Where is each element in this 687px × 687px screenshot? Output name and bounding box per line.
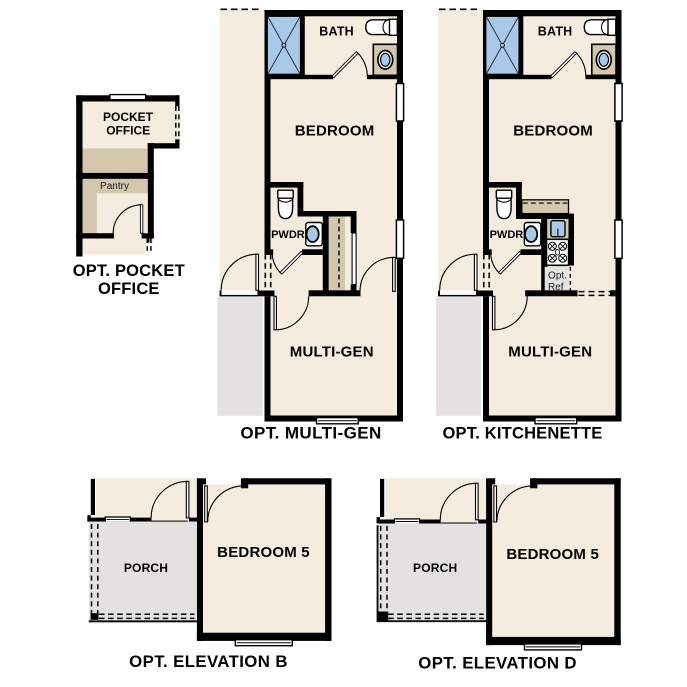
svg-text:BEDROOM 5: BEDROOM 5 — [506, 546, 599, 563]
svg-text:OPT. KITCHENETTE: OPT. KITCHENETTE — [443, 425, 603, 443]
svg-text:PWDR: PWDR — [490, 229, 524, 241]
svg-text:MULTI-GEN: MULTI-GEN — [508, 343, 592, 360]
svg-text:BEDROOM 5: BEDROOM 5 — [217, 544, 310, 561]
svg-text:PORCH: PORCH — [124, 561, 168, 575]
svg-text:BEDROOM: BEDROOM — [295, 123, 375, 140]
svg-text:OPT. ELEVATION B: OPT. ELEVATION B — [129, 652, 288, 671]
svg-text:MULTI-GEN: MULTI-GEN — [290, 343, 374, 360]
svg-text:BATH: BATH — [319, 24, 354, 38]
svg-text:OPT. MULTI-GEN: OPT. MULTI-GEN — [240, 424, 381, 443]
svg-text:Opt.: Opt. — [548, 270, 567, 281]
svg-text:PORCH: PORCH — [413, 561, 457, 575]
svg-text:OFFICE: OFFICE — [106, 123, 150, 137]
svg-text:POCKET: POCKET — [103, 110, 154, 124]
svg-text:OFFICE: OFFICE — [98, 280, 160, 298]
svg-text:Pantry: Pantry — [100, 181, 129, 192]
svg-text:OPT. ELEVATION D: OPT. ELEVATION D — [418, 654, 577, 673]
svg-text:OPT. POCKET: OPT. POCKET — [73, 262, 185, 280]
svg-text:BEDROOM: BEDROOM — [513, 123, 593, 140]
svg-text:BATH: BATH — [538, 24, 573, 38]
svg-text:PWDR: PWDR — [271, 229, 305, 241]
